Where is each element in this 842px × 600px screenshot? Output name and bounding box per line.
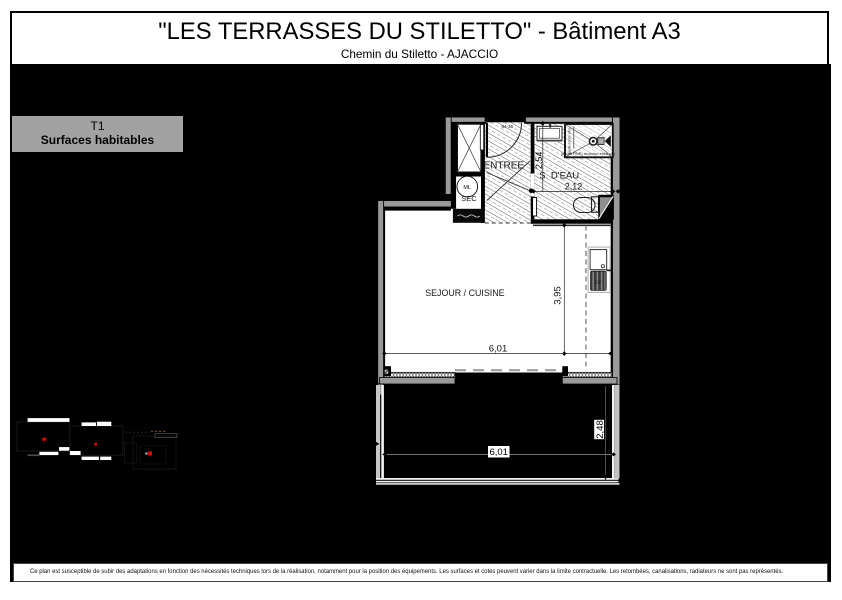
svg-text:3,95: 3,95 <box>553 286 564 305</box>
svg-text:SEJOUR / CUISINE: SEJOUR / CUISINE <box>425 288 504 298</box>
svg-text:ML: ML <box>463 185 471 191</box>
svg-text:2,48: 2,48 <box>595 420 606 439</box>
svg-text:6,01: 6,01 <box>489 343 508 354</box>
svg-text:S. D'EAU: S. D'EAU <box>539 170 579 181</box>
svg-text:garde corps vitre: garde corps vitre <box>568 128 572 155</box>
svg-text:2,54: 2,54 <box>534 152 544 170</box>
svg-text:6,01: 6,01 <box>489 447 508 458</box>
svg-text:(acces PMR) receveur extra pla: (acces PMR) receveur extra plat <box>561 152 616 156</box>
svg-text:2,12: 2,12 <box>565 181 583 191</box>
svg-text:ENTREE: ENTREE <box>484 161 525 172</box>
svg-text:SEC: SEC <box>461 194 477 203</box>
svg-text:LV: LV <box>595 280 601 286</box>
svg-text:84-16: 84-16 <box>502 124 514 129</box>
